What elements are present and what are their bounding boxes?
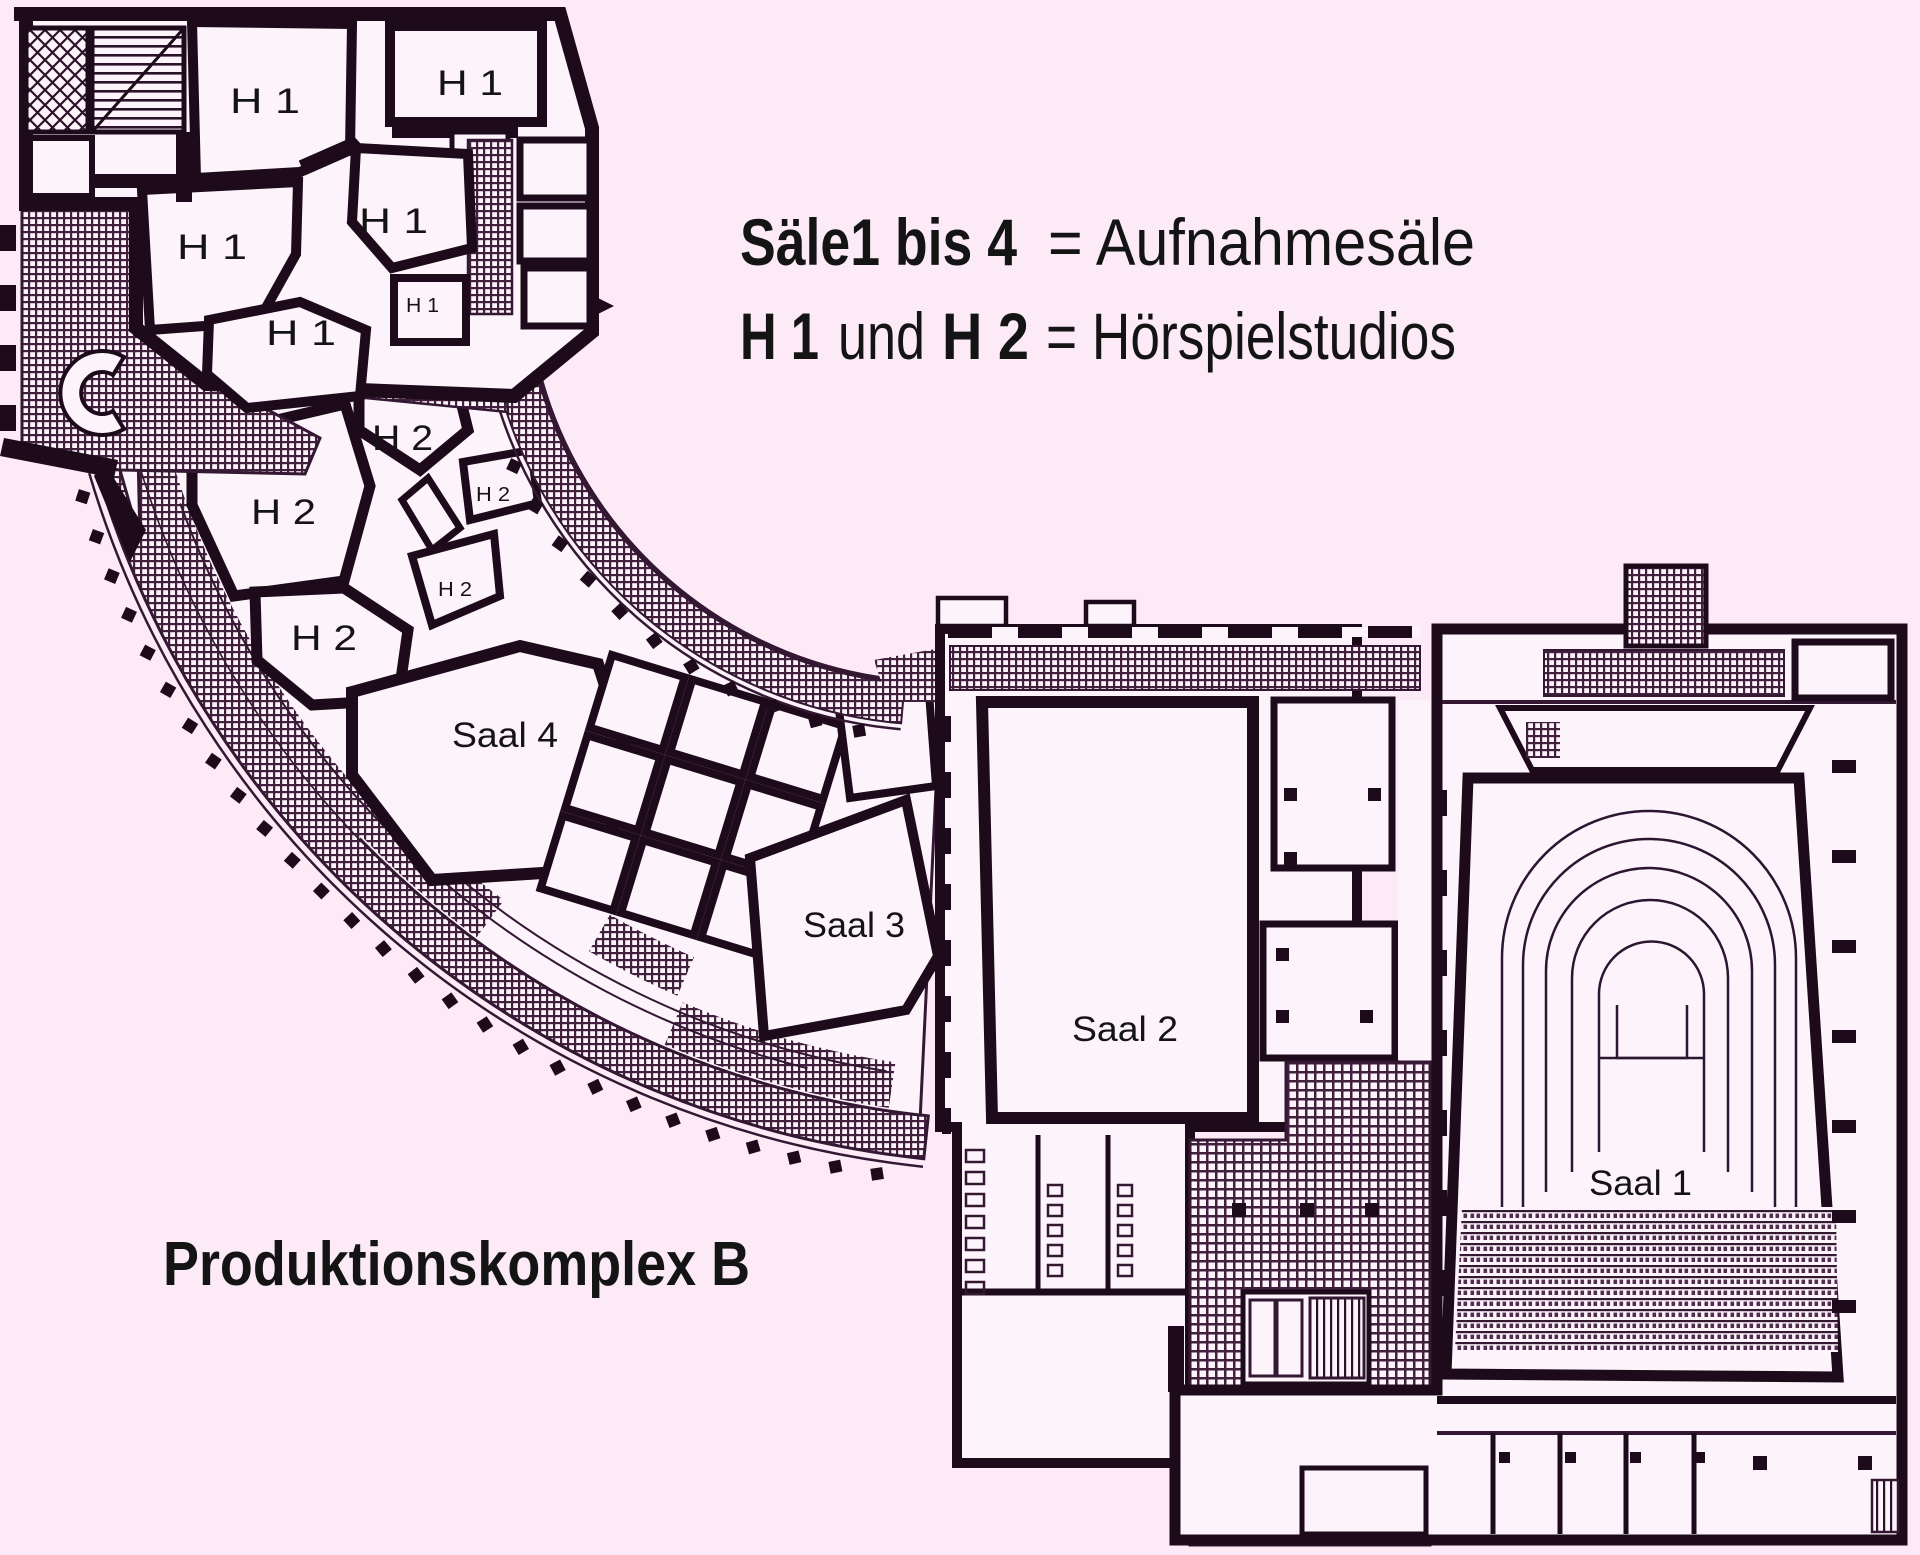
svg-text:H 2: H 2 [291,619,357,658]
svg-text:Saal 4: Saal 4 [452,716,558,755]
svg-text:= Hörspielstudios: = Hörspielstudios [1046,299,1456,373]
svg-text:Saal 1: Saal 1 [1589,1164,1692,1203]
svg-text:H 1: H 1 [230,82,300,121]
svg-text:Produktionskomplex B: Produktionskomplex B [163,1230,750,1299]
svg-text:H 1: H 1 [359,202,428,241]
svg-text:H 1: H 1 [266,314,336,353]
svg-text:H 2: H 2 [251,493,316,532]
svg-text:= Aufnahmesäle: = Aufnahmesäle [1048,205,1475,279]
svg-text:H 1: H 1 [406,295,439,317]
svg-text:Saal 2: Saal 2 [1072,1010,1178,1049]
svg-text:H 1: H 1 [177,228,247,267]
svg-text:H 2: H 2 [476,484,510,506]
svg-text:H 2: H 2 [438,579,472,601]
svg-text:Säle1 bis 4: Säle1 bis 4 [740,205,1017,279]
svg-text:H 1: H 1 [437,64,503,103]
svg-text:Saal 3: Saal 3 [803,906,905,945]
svg-text:H 1: H 1 [740,299,819,373]
svg-text:H 2: H 2 [942,299,1029,373]
svg-text:H 2: H 2 [372,419,433,458]
svg-text:und: und [838,299,925,373]
